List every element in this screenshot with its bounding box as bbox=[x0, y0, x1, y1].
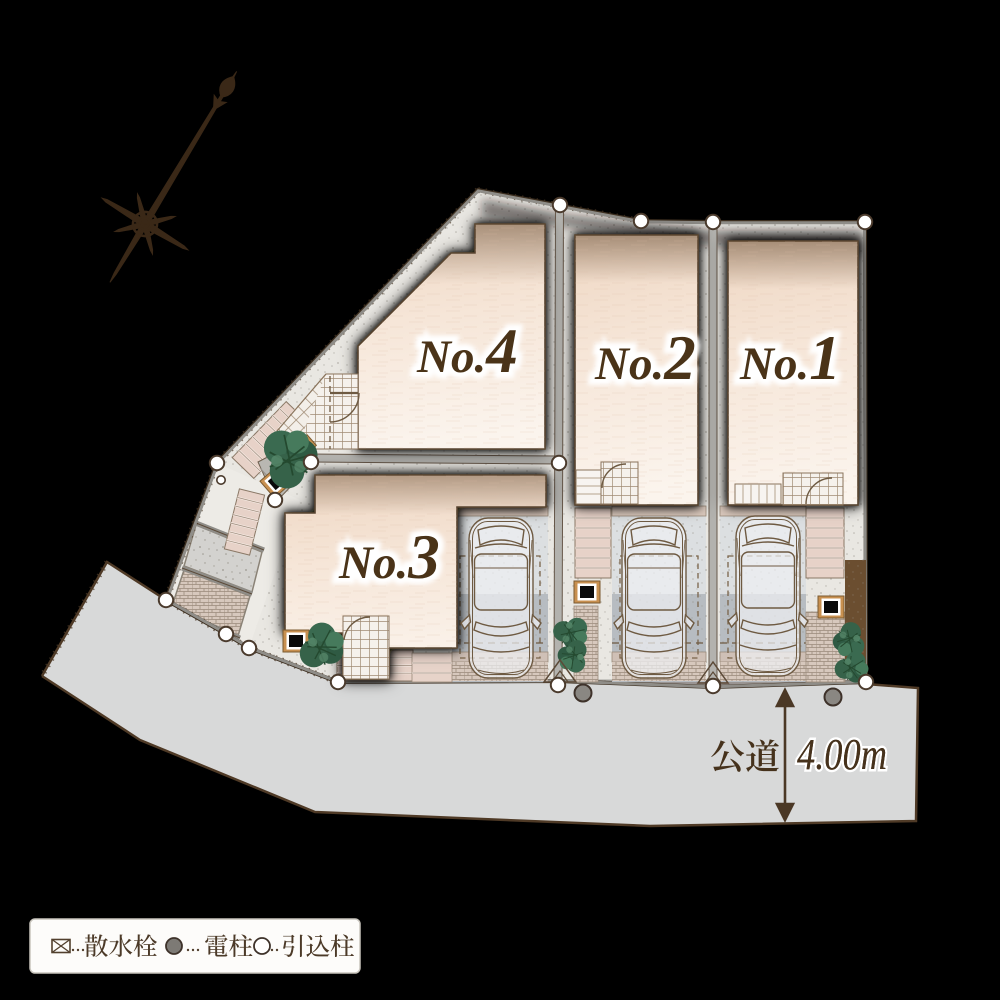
svg-text:4.00m: 4.00m bbox=[797, 730, 887, 779]
